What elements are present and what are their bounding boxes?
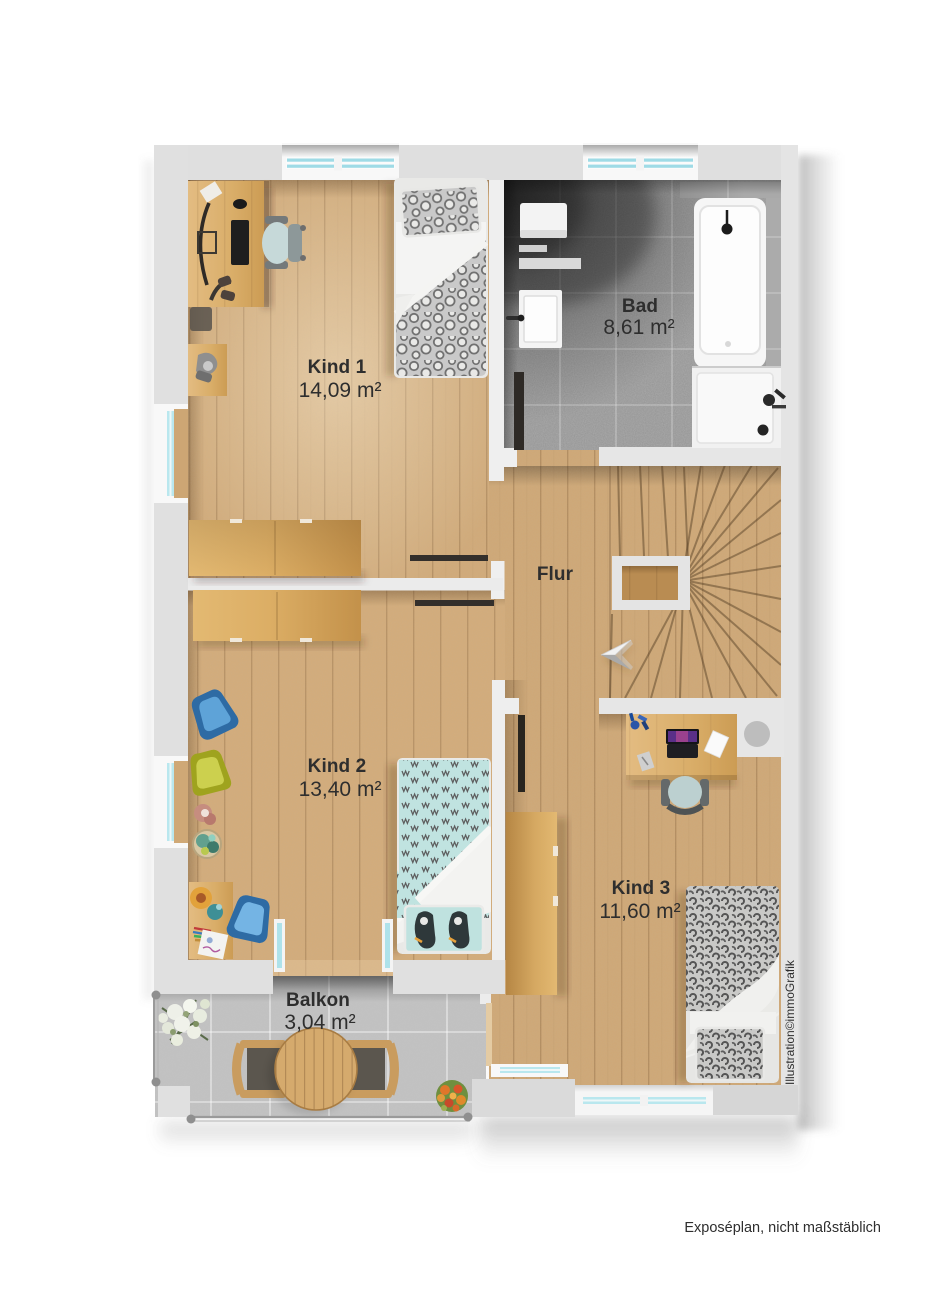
svg-text:3,04 m²: 3,04 m² bbox=[284, 1011, 355, 1034]
svg-text:Kind 3: Kind 3 bbox=[612, 878, 671, 899]
svg-text:Kind 1: Kind 1 bbox=[308, 357, 367, 378]
svg-text:Kind 2: Kind 2 bbox=[308, 756, 367, 777]
svg-text:13,40 m²: 13,40 m² bbox=[299, 778, 382, 801]
svg-text:11,60 m²: 11,60 m² bbox=[599, 900, 680, 923]
svg-text:14,09 m²: 14,09 m² bbox=[299, 379, 382, 402]
svg-text:8,61 m²: 8,61 m² bbox=[603, 316, 674, 339]
svg-text:Exposéplan, nicht maßstäblich: Exposéplan, nicht maßstäblich bbox=[684, 1220, 881, 1236]
svg-text:Illustration©immoGrafik: Illustration©immoGrafik bbox=[783, 959, 797, 1085]
svg-text:Bad: Bad bbox=[622, 296, 658, 317]
svg-text:Balkon: Balkon bbox=[286, 990, 350, 1011]
svg-text:Flur: Flur bbox=[537, 564, 574, 585]
